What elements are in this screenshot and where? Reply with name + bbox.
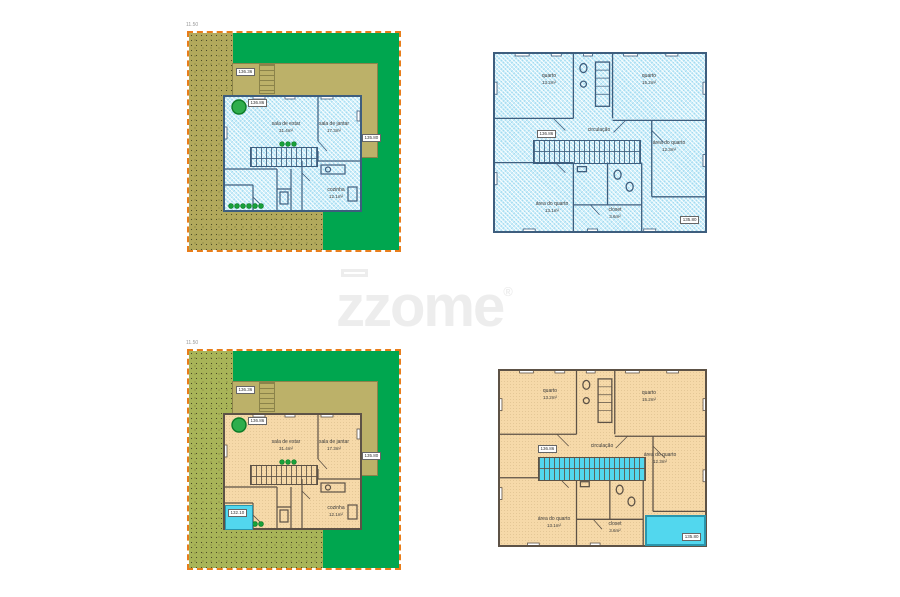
upper-floor-plan-orange: 135.80 quarto 13.2m² quarto 15.2m² circu…	[498, 369, 707, 547]
level-marker-terrace: 135.80	[680, 216, 699, 224]
room-name: área do quarto	[653, 140, 686, 146]
tree-icon	[232, 418, 246, 432]
staircase	[538, 457, 646, 481]
terrain-bottom	[189, 530, 323, 568]
room-label-kitchen: cozinha 12.1m²	[314, 506, 358, 517]
room-name: closet	[608, 207, 621, 213]
watermark-logo: zzome®	[336, 256, 572, 330]
level-marker-hall: 136.86	[538, 445, 557, 453]
room-area: 31.4m²	[258, 446, 314, 451]
pool: 132.10	[225, 505, 253, 530]
deck-steps	[259, 64, 275, 94]
upper-floor-plan-blue: quarto 13.2m² quarto 15.2m² circulação á…	[493, 52, 707, 233]
room-label-suite-left: área do quarto 13.1m²	[524, 202, 580, 213]
terrain-bottom	[189, 212, 323, 250]
room-name: quarto	[642, 73, 656, 79]
room-name: quarto	[543, 388, 557, 394]
room-area: 12.1m²	[314, 512, 358, 517]
level-marker-terrace: 135.80	[682, 533, 701, 541]
room-area: 13.2m²	[522, 395, 578, 400]
room-label-hall: circulação	[574, 128, 624, 134]
room-name: área do quarto	[644, 452, 677, 458]
room-area: 12.3m²	[641, 147, 697, 152]
watermark-zbar-decoration	[341, 269, 368, 277]
staircase	[533, 140, 641, 164]
terrace: 135.80	[645, 515, 706, 546]
room-label-kitchen: cozinha 12.1m²	[314, 188, 358, 199]
room-area: 12.1m²	[314, 194, 358, 199]
room-label-bedroom-left: quarto 13.2m²	[521, 74, 577, 85]
floorplan-sheet: zzome®	[0, 0, 900, 597]
level-marker-interior: 136.86	[248, 99, 267, 107]
level-marker-hall: 136.86	[537, 130, 556, 138]
room-label-closet: closet 3.6m²	[595, 522, 635, 533]
level-marker-pool: 132.10	[228, 509, 247, 517]
site-plan-blue: sala de estar 31.4m² sala de jantar 17.3…	[186, 30, 402, 253]
staircase	[250, 147, 318, 167]
room-area: 13.1m²	[524, 208, 580, 213]
room-label-bedroom-left: quarto 13.2m²	[522, 389, 578, 400]
room-name: quarto	[542, 73, 556, 79]
room-area: 12.3m²	[632, 459, 688, 464]
watermark-text: zzome	[336, 274, 503, 339]
room-label-suite-left: área do quarto 13.1m²	[526, 517, 582, 528]
room-name: área do quarto	[538, 516, 571, 522]
room-label-closet: closet 3.6m²	[595, 208, 635, 219]
deck-steps	[259, 382, 275, 412]
dimension-text: 11.50	[186, 340, 198, 346]
room-name: sala de jantar	[319, 121, 349, 127]
room-label-dining: sala de jantar 17.3m²	[312, 122, 356, 133]
level-marker-deck: 136.36	[236, 386, 255, 394]
room-label-living: sala de estar 31.4m²	[258, 122, 314, 133]
room-name: cozinha	[327, 505, 344, 511]
room-label-bedroom-right: quarto 15.2m²	[621, 391, 677, 402]
level-marker-yard: 135.80	[362, 134, 381, 142]
dimension-text: 11.50	[186, 22, 198, 28]
room-area: 31.4m²	[258, 128, 314, 133]
room-area: 13.1m²	[526, 523, 582, 528]
room-label-suite-right: área do quarto 12.3m²	[632, 453, 688, 464]
room-area: 3.6m²	[595, 214, 635, 219]
room-name: sala de estar	[272, 121, 301, 127]
site-plan-orange: 132.10 sala de estar 31.4m² sala de jant…	[186, 348, 402, 571]
room-name: circulação	[591, 443, 614, 449]
room-name: sala de jantar	[319, 439, 349, 445]
room-name: área do quarto	[536, 201, 569, 207]
tree-icon	[232, 100, 246, 114]
level-marker-deck: 136.36	[236, 68, 255, 76]
registered-mark: ®	[503, 284, 513, 299]
room-name: circulação	[588, 127, 611, 133]
room-name: cozinha	[327, 187, 344, 193]
room-area: 15.2m²	[621, 80, 677, 85]
room-label-bedroom-right: quarto 15.2m²	[621, 74, 677, 85]
room-name: sala de estar	[272, 439, 301, 445]
room-label-dining: sala de jantar 17.3m²	[312, 440, 356, 451]
room-area: 13.2m²	[521, 80, 577, 85]
room-label-living: sala de estar 31.4m²	[258, 440, 314, 451]
staircase	[250, 465, 318, 485]
level-marker-yard: 135.80	[362, 452, 381, 460]
room-label-hall: circulação	[577, 444, 627, 450]
room-area: 15.2m²	[621, 397, 677, 402]
level-marker-interior: 136.86	[248, 417, 267, 425]
room-area: 17.3m²	[312, 128, 356, 133]
room-label-suite-right: área do quarto 12.3m²	[641, 141, 697, 152]
room-name: closet	[608, 521, 621, 527]
room-area: 17.3m²	[312, 446, 356, 451]
room-name: quarto	[642, 390, 656, 396]
room-area: 3.6m²	[595, 528, 635, 533]
